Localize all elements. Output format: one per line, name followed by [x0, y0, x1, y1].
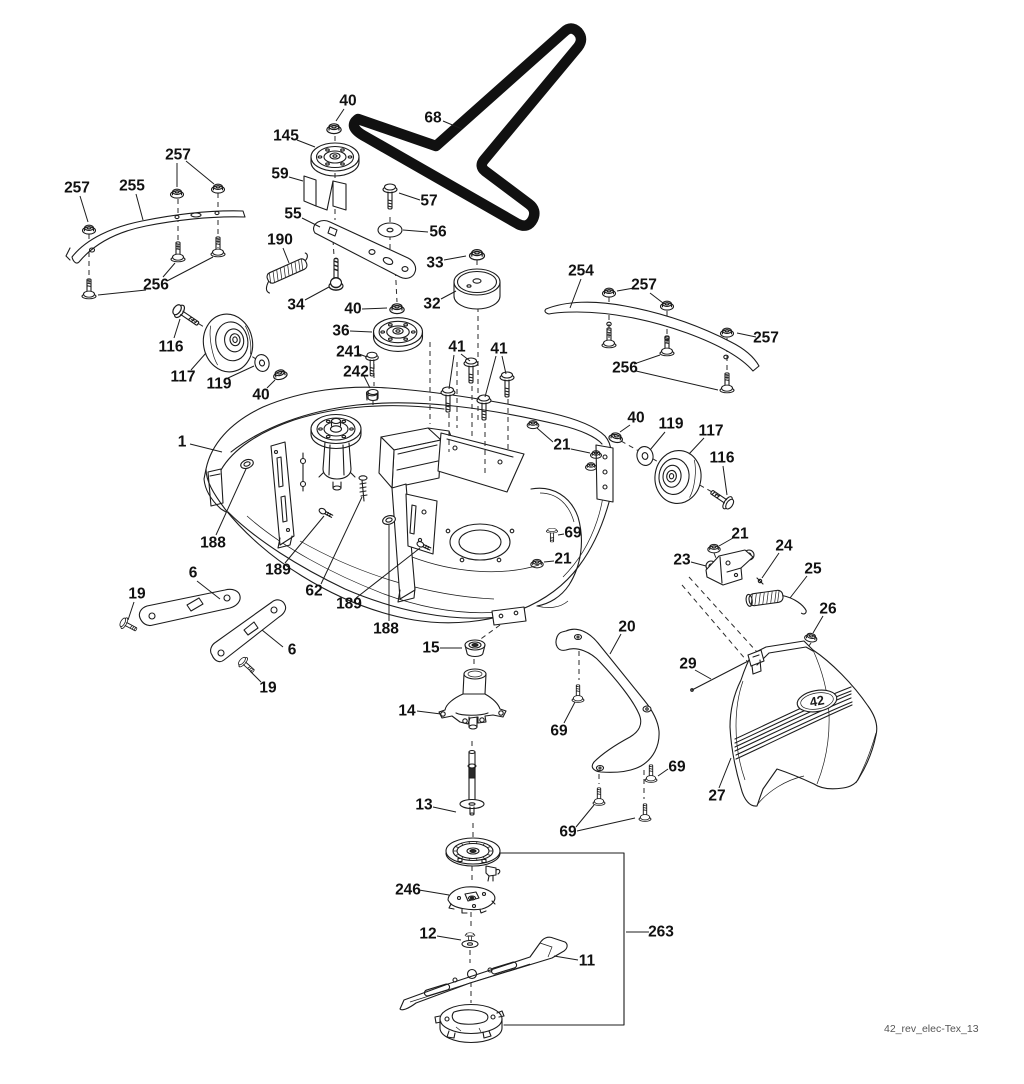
leader-line — [191, 353, 206, 370]
bolt-69 — [645, 765, 657, 783]
bolt-69 — [572, 685, 584, 703]
part-number-label: 6 — [288, 642, 297, 659]
flange-nut-257 — [721, 328, 734, 337]
callout-33-16: 33 — [426, 255, 466, 272]
callout-257-26: 257 — [617, 277, 663, 304]
part-number-label: 34 — [287, 297, 305, 314]
part-number-label: 69 — [668, 759, 686, 776]
part-number-label: 145 — [273, 128, 299, 145]
part-number-label: 11 — [579, 953, 596, 970]
callout-56-14: 56 — [403, 224, 447, 241]
leader-line — [403, 230, 428, 232]
bolt-19 — [236, 655, 257, 676]
drawing-number: 42_rev_elec-Tex_13 — [884, 1023, 979, 1035]
leader-line — [163, 263, 175, 277]
leader-line — [136, 194, 143, 220]
part-number-label: 257 — [165, 147, 191, 164]
callout-242-22: 242 — [343, 364, 370, 389]
flange-nut-257 — [83, 225, 96, 234]
bracket-59 — [304, 176, 346, 210]
clutch-plate-upper — [446, 838, 500, 866]
deck-right-bracket — [596, 445, 613, 502]
idler-pulley-36 — [374, 318, 423, 352]
leader-line — [695, 670, 711, 679]
part-number-label: 241 — [336, 344, 362, 361]
part-number-label: 36 — [332, 323, 350, 340]
callout-25-60: 25 — [790, 561, 822, 599]
part-number-label: 256 — [143, 277, 169, 294]
spring-25 — [745, 587, 806, 622]
leader-line — [297, 140, 315, 147]
clutch-connector — [486, 866, 500, 881]
callout-254-25: 254 — [568, 263, 594, 309]
flange-nut-257 — [603, 288, 616, 297]
screw-24 — [757, 578, 763, 584]
part-number-label: 257 — [753, 330, 779, 347]
callout-24-59: 24 — [762, 538, 793, 579]
callout-40-19: 40 — [344, 301, 387, 318]
callout-21-57: 21 — [719, 526, 749, 547]
part-number-label: 13 — [415, 797, 433, 814]
part-number-label: 189 — [336, 596, 362, 613]
callout-13-48: 13 — [415, 797, 456, 814]
bolt-69 — [639, 804, 651, 822]
callout-15-46: 15 — [422, 640, 462, 657]
part-number-label: 69 — [564, 525, 582, 542]
part-number-label: 188 — [373, 621, 399, 638]
part-number-label: 21 — [731, 526, 749, 543]
flange-nut-40 — [272, 368, 288, 380]
retainer-246 — [448, 887, 495, 913]
part-number-label: 29 — [679, 656, 697, 673]
callout-34-17: 34 — [287, 287, 329, 314]
part-number-label: 256 — [612, 360, 638, 377]
part-number-label: 190 — [267, 232, 293, 249]
part-number-label: 40 — [344, 301, 361, 318]
part-number-label: 116 — [709, 450, 734, 467]
wheel-117 — [199, 310, 257, 376]
leader-line — [336, 109, 344, 121]
callout-40-38: 40 — [620, 410, 645, 433]
part-number-label: 19 — [128, 586, 146, 603]
part-number-label: 257 — [64, 180, 90, 197]
leader-line — [650, 293, 663, 303]
part-number-label: 41 — [490, 341, 508, 358]
leader-line — [186, 161, 214, 184]
deck-shell — [204, 387, 613, 625]
spindle-stack — [439, 640, 506, 815]
part-number-label: 246 — [395, 882, 421, 899]
part-number-label: 68 — [424, 110, 442, 127]
leader-line — [417, 711, 441, 714]
callout-20-53: 20 — [610, 619, 636, 655]
leader-line — [691, 562, 706, 566]
callout-257-2: 257 — [165, 147, 214, 188]
callout-29-62: 29 — [679, 656, 711, 680]
callout-14-47: 14 — [398, 703, 441, 720]
part-number-label: 117 — [170, 369, 195, 386]
callout-27-63: 27 — [708, 758, 731, 805]
bolt-34 — [329, 258, 343, 290]
part-number-label: 117 — [698, 423, 723, 440]
leader-line — [437, 936, 461, 940]
part-number-label: 62 — [305, 583, 322, 600]
part-number-label: 255 — [119, 178, 145, 195]
leader-line — [790, 576, 807, 598]
flange-nut-257 — [212, 184, 225, 193]
washer-56 — [378, 223, 402, 237]
part-number-label: 33 — [426, 255, 444, 272]
shaft-13 — [460, 751, 484, 816]
part-number-label: 20 — [618, 619, 635, 636]
bracket-23 — [706, 550, 754, 585]
callout-69-56: 69 — [559, 805, 635, 841]
callout-116-41: 116 — [709, 450, 734, 496]
pulley-32 — [454, 269, 500, 309]
leader-line — [554, 956, 578, 960]
callout-40-7: 40 — [252, 380, 275, 404]
leader-line — [98, 290, 146, 295]
flange-nut-40 — [608, 432, 623, 444]
boundary-263 — [500, 853, 624, 1025]
leader-line — [636, 371, 718, 390]
callout-69-55: 69 — [658, 759, 686, 777]
callout-36-20: 36 — [332, 323, 372, 340]
callout-256-3: 256 — [98, 257, 213, 295]
callout-23-58: 23 — [673, 552, 706, 569]
bolt-57 — [383, 184, 397, 209]
callout-263-52: 263 — [626, 924, 674, 941]
callout-119-39: 119 — [650, 416, 684, 451]
leader-line — [449, 355, 454, 389]
part-number-label: 15 — [422, 640, 440, 657]
leader-line — [262, 630, 283, 647]
part-number-label: 56 — [429, 224, 447, 241]
wheel-117 — [652, 448, 704, 506]
bushing-15 — [465, 640, 485, 657]
callout-256-28: 256 — [612, 355, 718, 390]
part-number-label: 19 — [259, 680, 277, 697]
leader-line — [283, 248, 289, 263]
flange-nut-33 — [470, 250, 485, 260]
flange-nut-40 — [390, 304, 404, 314]
part-number-label: 257 — [631, 277, 657, 294]
part-number-label: 119 — [206, 376, 231, 393]
badge-42-text: 42 — [809, 692, 826, 709]
callout-145-9: 145 — [273, 128, 315, 148]
part-number-label: 25 — [804, 561, 822, 578]
leader-line — [305, 287, 329, 300]
flange-nut-40 — [327, 124, 341, 134]
part-number-label: 21 — [553, 437, 571, 454]
callout-69-54: 69 — [550, 702, 575, 740]
leader-line — [350, 331, 372, 332]
leader-line — [80, 196, 88, 222]
leader-line — [502, 356, 506, 374]
part-number-label: 57 — [420, 193, 437, 210]
part-number-label: 263 — [648, 924, 674, 941]
washer-119 — [253, 353, 271, 373]
callout-57-12: 57 — [399, 193, 438, 210]
part-number-label: 188 — [200, 535, 226, 552]
callout-255-1: 255 — [119, 178, 145, 221]
callout-6-44: 6 — [262, 630, 297, 659]
part-number-label: 69 — [559, 824, 577, 841]
leader-line — [289, 177, 303, 181]
callout-11-51: 11 — [554, 953, 596, 970]
callout-246-49: 246 — [395, 882, 449, 899]
bolt-41 — [464, 358, 478, 383]
part-number-label: 6 — [189, 565, 198, 582]
part-number-label: 189 — [265, 562, 291, 579]
idler-arm-assembly — [259, 124, 514, 420]
leader-line — [813, 616, 823, 633]
part-number-label: 59 — [271, 166, 289, 183]
leader-line — [444, 256, 466, 260]
leader-line — [419, 890, 449, 895]
leader-line — [564, 702, 575, 723]
callout-19-45: 19 — [250, 671, 277, 697]
part-number-label: 14 — [398, 703, 416, 720]
part-number-label: 26 — [819, 601, 837, 618]
callout-257-0: 257 — [64, 180, 90, 223]
part-number-label: 242 — [343, 364, 369, 381]
spindle-housing-14 — [439, 669, 506, 729]
callout-12-50: 12 — [419, 926, 461, 943]
callout-26-61: 26 — [813, 601, 837, 634]
bolt-12 — [462, 933, 478, 948]
part-number-label: 23 — [673, 552, 691, 569]
callout-257-27: 257 — [737, 330, 779, 347]
part-number-label: 40 — [252, 387, 269, 404]
bracket-254-assembly — [545, 288, 759, 393]
flange-nut-257 — [171, 189, 184, 198]
leader-line — [485, 356, 496, 397]
part-number-label: 41 — [448, 339, 466, 356]
callout-116-4: 116 — [158, 319, 183, 356]
callout-32-18: 32 — [423, 291, 456, 313]
leader-line — [719, 758, 731, 788]
part-number-label: 40 — [339, 93, 356, 110]
blade-11 — [400, 937, 567, 1010]
bolt-41 — [500, 372, 514, 397]
callout-59-11: 59 — [271, 166, 303, 183]
callout-190-15: 190 — [267, 232, 293, 264]
exploded-parts-diagram: 42 — [0, 0, 1024, 1084]
leader-line — [433, 807, 456, 812]
leader-line — [658, 769, 668, 776]
link-bracket-6 — [139, 589, 240, 625]
part-number-label: 116 — [158, 339, 183, 356]
leader-line — [399, 193, 420, 200]
part-number-label: 55 — [284, 206, 302, 223]
part-number-label: 1 — [178, 434, 187, 451]
leader-line — [723, 466, 727, 495]
callout-55-13: 55 — [284, 206, 320, 228]
shoulder-bolt-116 — [170, 302, 202, 330]
clutch-housing-lower — [435, 1005, 504, 1043]
part-number-label: 40 — [627, 410, 644, 427]
bolt-69 — [593, 788, 605, 806]
part-number-label: 12 — [419, 926, 436, 943]
parts-diagram-page: 42 — [0, 0, 1024, 1084]
leader-line — [762, 553, 779, 578]
part-number-label: 119 — [658, 416, 683, 433]
part-number-label: 21 — [554, 551, 572, 568]
belt-cover-27: 42 — [730, 641, 877, 806]
leader-line — [689, 438, 704, 454]
leader-line — [577, 818, 635, 831]
nut-21 — [708, 544, 720, 552]
callout-117-5: 117 — [170, 353, 206, 386]
shoulder-bolt-116 — [708, 486, 737, 512]
leader-line — [128, 602, 134, 620]
leader-line — [362, 308, 387, 309]
leader-line — [174, 319, 180, 338]
leader-line — [576, 805, 594, 827]
callout-241-21: 241 — [336, 344, 367, 361]
part-number-label: 24 — [775, 538, 793, 555]
part-number-label: 69 — [550, 723, 568, 740]
leader-line — [650, 432, 665, 450]
part-number-label: 32 — [423, 296, 440, 313]
leader-line — [610, 634, 621, 654]
gauge-wheel-right — [608, 432, 736, 512]
nut-26 — [804, 632, 818, 643]
bracket-20 — [556, 629, 659, 772]
idler-pulley-145 — [311, 143, 359, 176]
part-number-label: 27 — [708, 788, 725, 805]
part-number-label: 254 — [568, 263, 594, 280]
